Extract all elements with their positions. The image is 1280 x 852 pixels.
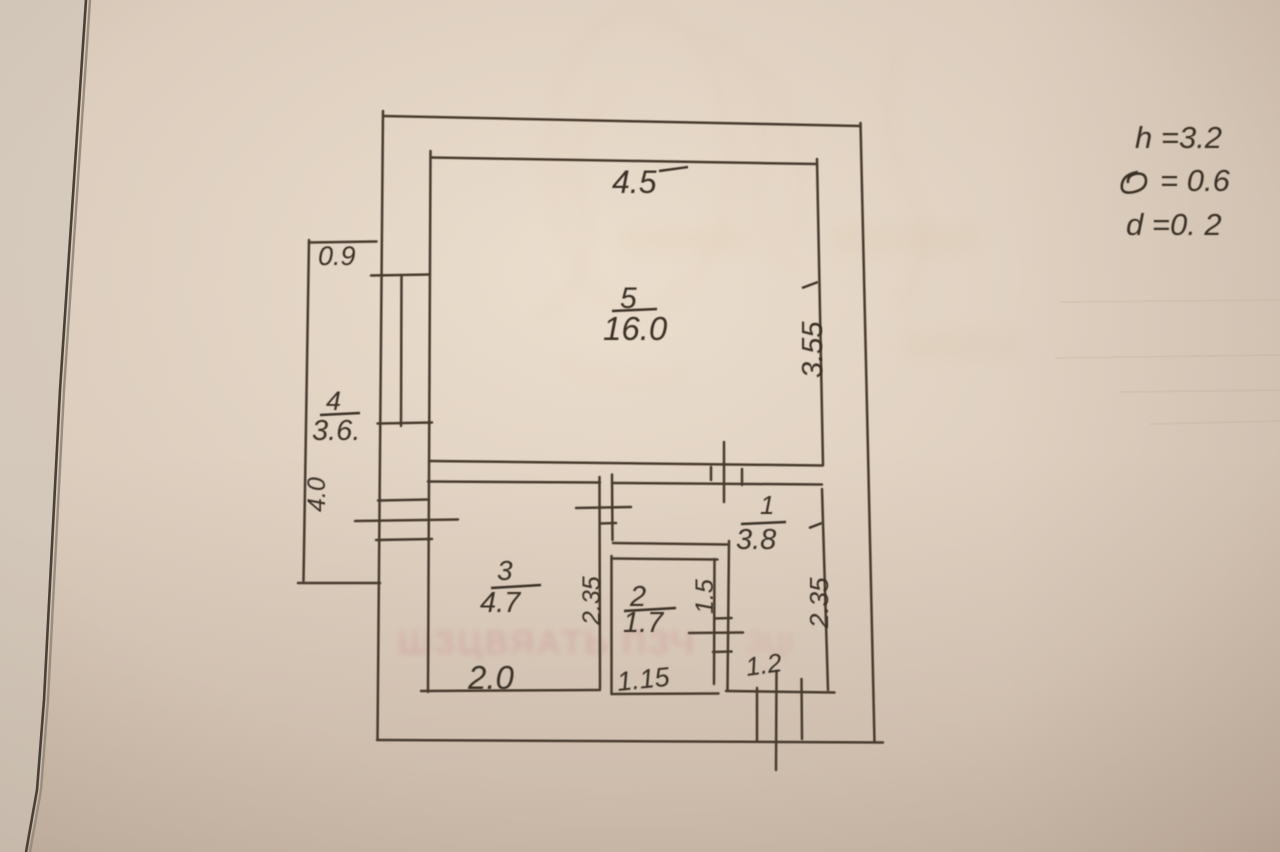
svg-text:d =0. 2: d =0. 2 — [1126, 207, 1222, 242]
svg-text:1.7: 1.7 — [623, 607, 665, 639]
svg-text:3.55: 3.55 — [797, 321, 829, 378]
svg-text:3.8: 3.8 — [736, 524, 776, 556]
svg-text:1.2: 1.2 — [744, 647, 785, 682]
svg-text:= 0.6: = 0.6 — [1160, 163, 1231, 198]
svg-text:4.0: 4.0 — [303, 477, 331, 512]
svg-text:3: 3 — [497, 555, 513, 586]
svg-text:3.6.: 3.6. — [312, 415, 360, 447]
svg-text:2.35: 2.35 — [578, 576, 606, 626]
svg-text:1.5: 1.5 — [691, 579, 719, 614]
svg-text:1.15: 1.15 — [615, 662, 671, 697]
svg-text:2.35: 2.35 — [804, 577, 834, 629]
svg-text:16.0: 16.0 — [603, 310, 668, 347]
svg-text:2.0: 2.0 — [467, 659, 515, 696]
svg-text:4.5: 4.5 — [612, 164, 657, 200]
svg-text:4.7: 4.7 — [480, 587, 522, 619]
svg-text:1: 1 — [760, 490, 774, 520]
svg-text:h =3.2: h =3.2 — [1135, 120, 1222, 155]
svg-text:4: 4 — [326, 386, 341, 416]
svg-text:0.9: 0.9 — [318, 241, 356, 271]
